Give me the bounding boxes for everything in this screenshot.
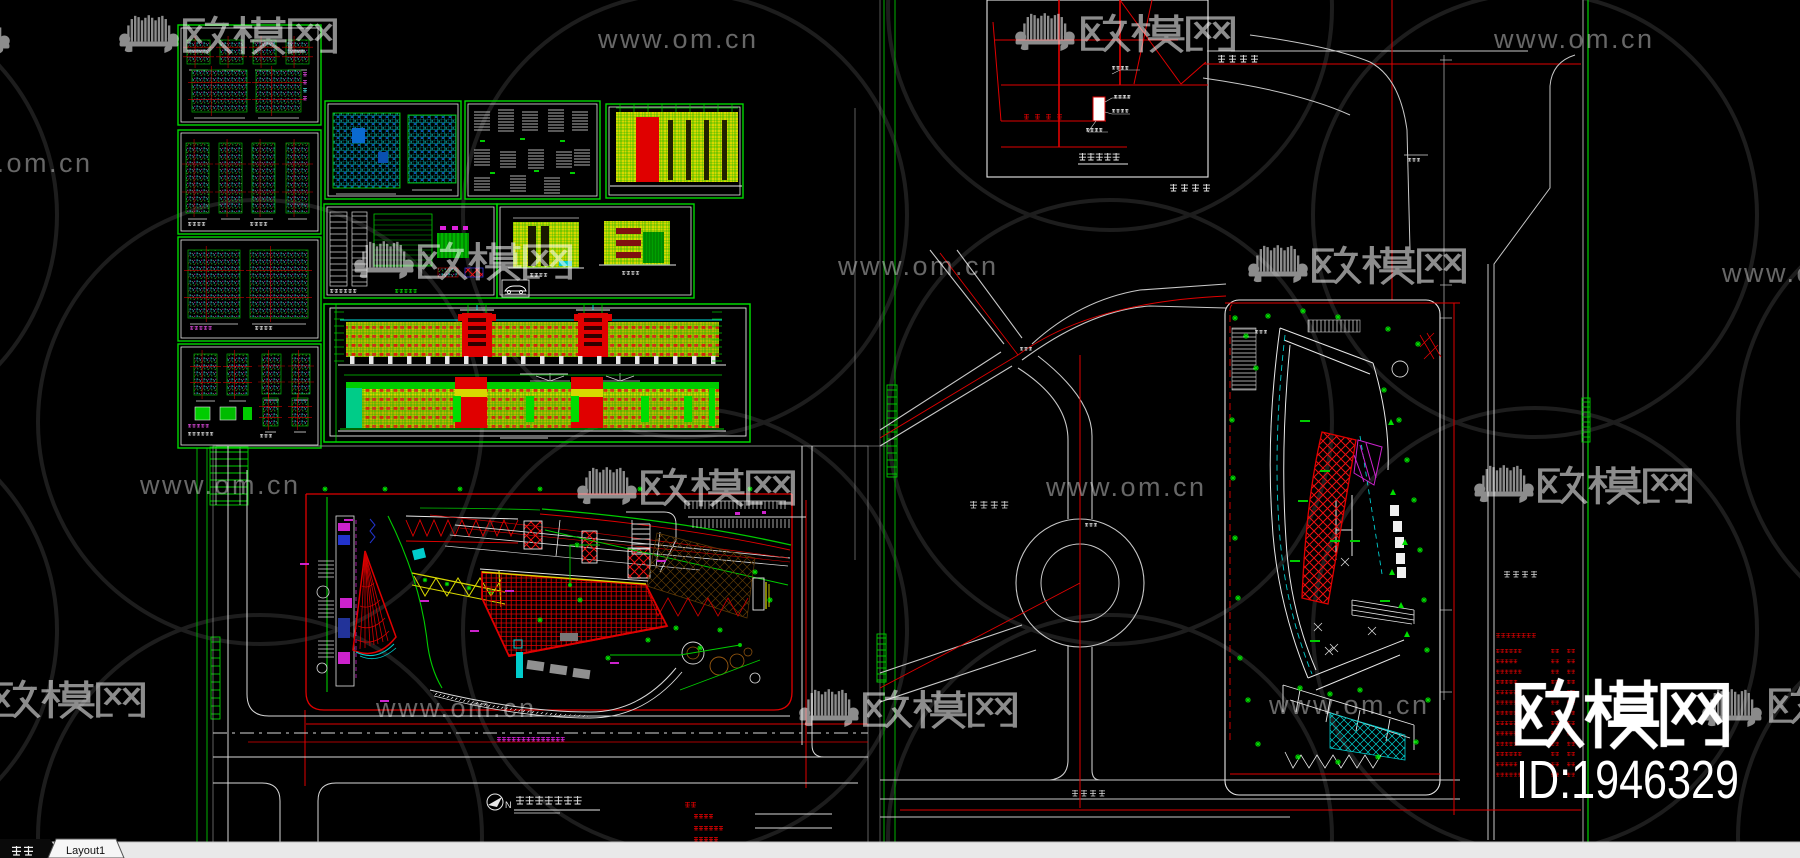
svg-text:Layout1: Layout1 bbox=[66, 845, 105, 857]
svg-text:www.om.cn: www.om.cn bbox=[375, 693, 537, 723]
svg-text:www.om.cn: www.om.cn bbox=[597, 24, 759, 54]
svg-text:www.om.cn: www.om.cn bbox=[1045, 472, 1207, 502]
svg-text:www.om.cn: www.om.cn bbox=[1721, 258, 1800, 288]
svg-text:www.om.cn: www.om.cn bbox=[1268, 690, 1430, 720]
svg-text:www.om.cn: www.om.cn bbox=[0, 148, 93, 178]
svg-text:N: N bbox=[505, 800, 512, 810]
svg-text:www.om.cn: www.om.cn bbox=[837, 251, 999, 281]
svg-text:www.om.cn: www.om.cn bbox=[139, 470, 301, 500]
svg-text:ID:1946329: ID:1946329 bbox=[1516, 750, 1739, 810]
svg-text:www.om.cn: www.om.cn bbox=[1493, 24, 1655, 54]
